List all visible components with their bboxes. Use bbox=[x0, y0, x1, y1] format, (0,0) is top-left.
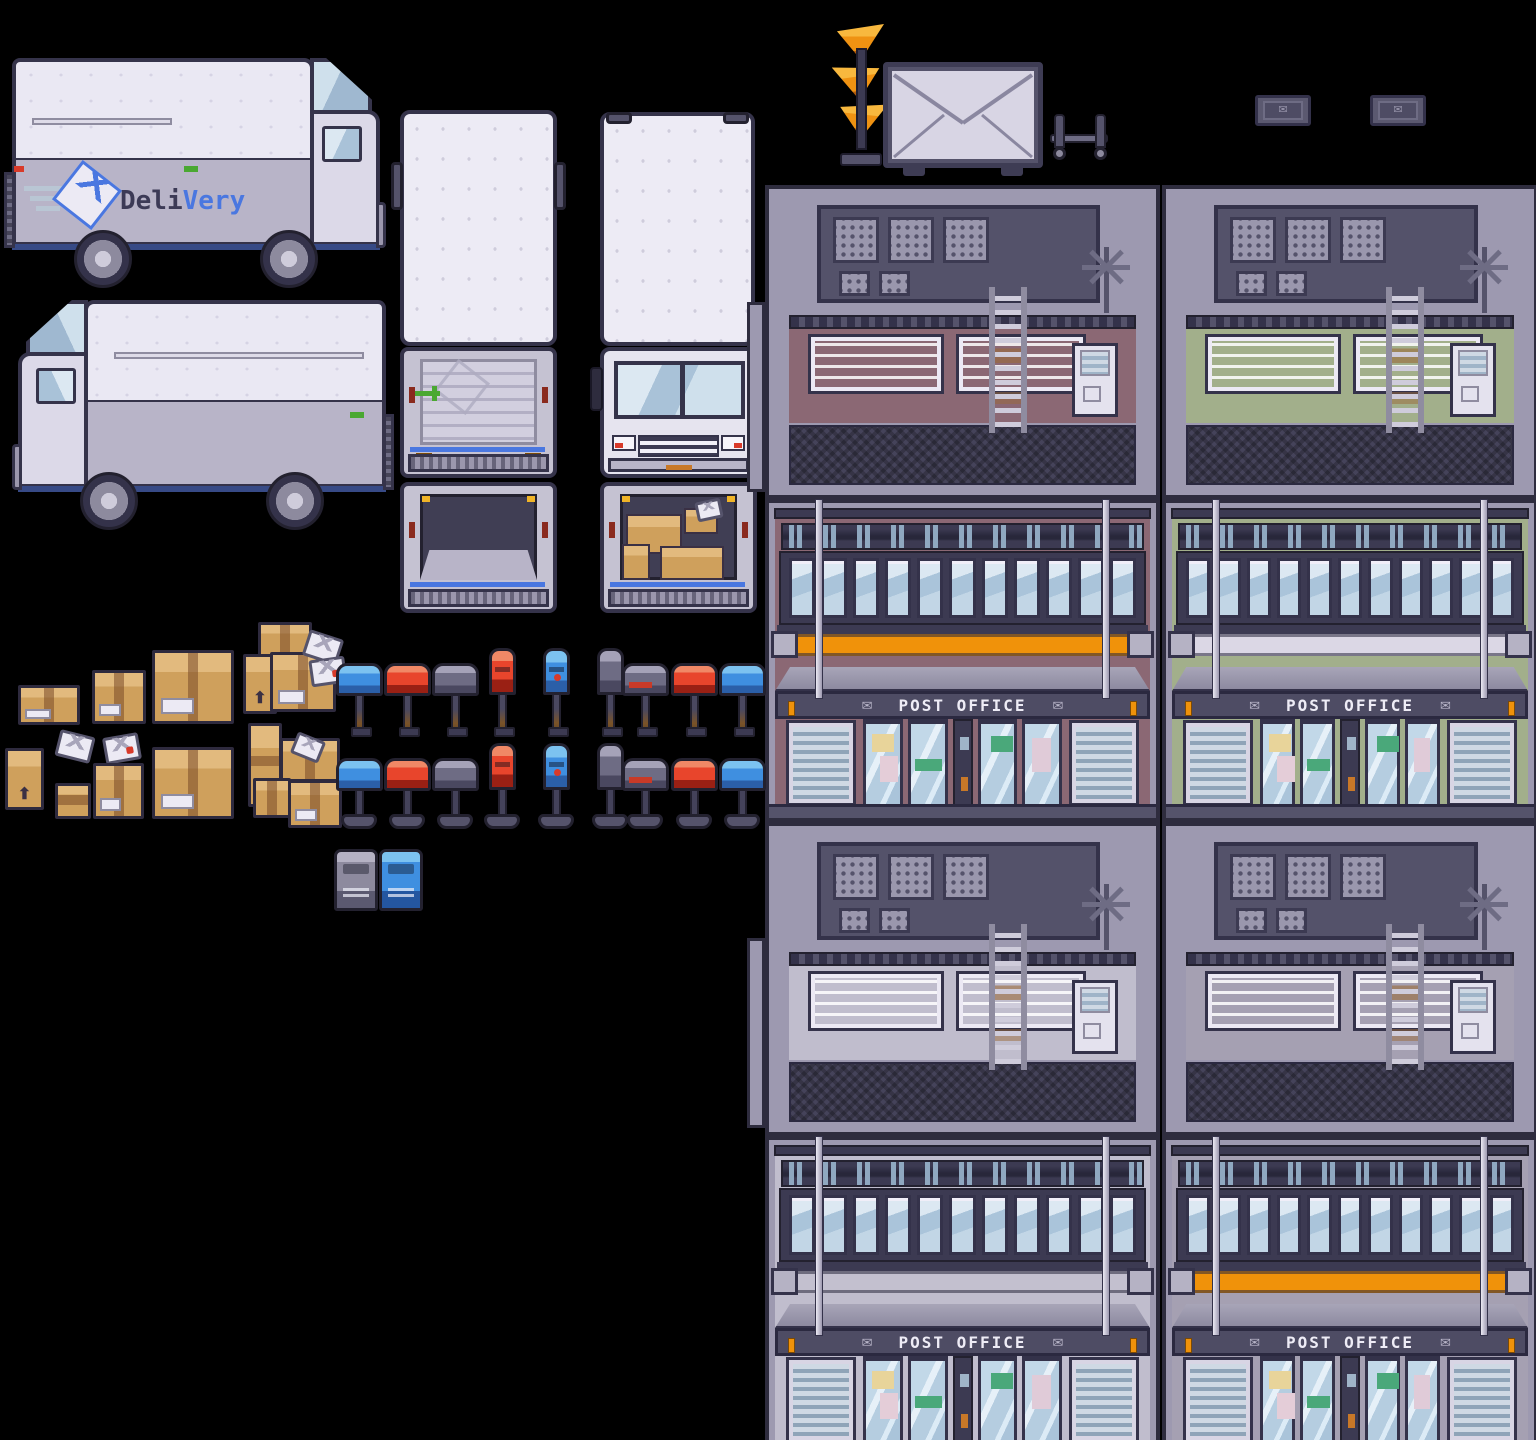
truck-mirror bbox=[554, 162, 566, 210]
tail-light bbox=[542, 387, 548, 403]
billboard-foot bbox=[1001, 166, 1023, 176]
apartment-floor bbox=[789, 329, 1136, 423]
envelope-icon: ✉ bbox=[862, 699, 873, 712]
tail-light bbox=[409, 387, 415, 403]
package-box bbox=[55, 783, 91, 819]
envelope-icon: ✉ bbox=[1052, 1336, 1063, 1349]
envelope bbox=[54, 729, 95, 764]
tall-window bbox=[1078, 558, 1104, 618]
stripe-end-cap bbox=[1127, 1268, 1154, 1295]
glass-pane-posters bbox=[1260, 1356, 1295, 1440]
ac-unit-small-icon bbox=[879, 908, 910, 933]
storefront bbox=[775, 1356, 1150, 1440]
ac-unit-icon bbox=[1340, 217, 1386, 263]
mailbox-stem bbox=[498, 788, 507, 816]
awning-lamp bbox=[1185, 1338, 1192, 1353]
stripe-end-cap bbox=[771, 631, 798, 658]
post-office-building-mauve-orange: ✉ POST OFFICE ✉ bbox=[765, 185, 1160, 822]
mailbox-red-side-pole bbox=[671, 663, 718, 696]
truck-blue-stripe bbox=[18, 486, 386, 492]
roof-rail bbox=[774, 508, 1151, 519]
glass-pane bbox=[908, 1356, 948, 1440]
envelope-glyph: ✉ bbox=[1278, 105, 1287, 116]
post-office-building-gray-gray: ✉ POST OFFICE ✉ bbox=[765, 822, 1160, 1440]
tall-window bbox=[1014, 1195, 1040, 1255]
glass-pane bbox=[1022, 719, 1062, 811]
mailbox-stem bbox=[355, 789, 364, 816]
roof-block bbox=[1162, 822, 1536, 1136]
tall-window bbox=[982, 1195, 1008, 1255]
support-pole bbox=[1212, 499, 1220, 699]
tall-window bbox=[917, 558, 943, 618]
truck-side-slot bbox=[32, 118, 172, 125]
storefront bbox=[1172, 719, 1528, 815]
door-hinge bbox=[727, 496, 735, 502]
cart-wheel bbox=[1053, 147, 1066, 160]
rooftop bbox=[1214, 205, 1478, 303]
rear-bumper bbox=[608, 589, 749, 607]
shuttered-window bbox=[1072, 1360, 1136, 1440]
ac-unit-icon bbox=[943, 854, 989, 900]
mailbox-post bbox=[498, 693, 507, 737]
tall-window bbox=[1078, 1195, 1104, 1255]
accent-stripe bbox=[777, 1271, 1148, 1293]
ac-unit-row-small bbox=[1236, 908, 1307, 933]
ac-unit-small-icon bbox=[1236, 271, 1267, 296]
ladder bbox=[1386, 287, 1424, 433]
tall-window bbox=[1247, 1195, 1271, 1255]
package-box bbox=[152, 650, 234, 724]
truck-windshield bbox=[26, 300, 88, 358]
awning-lamp bbox=[788, 701, 795, 716]
clerestory-windows bbox=[1178, 1160, 1522, 1187]
tall-window bbox=[1307, 1195, 1331, 1255]
ac-unit-icon bbox=[833, 854, 879, 900]
antenna-pole bbox=[1104, 884, 1109, 950]
antenna-icon bbox=[1082, 247, 1132, 313]
awning: ✉ POST OFFICE ✉ bbox=[1172, 667, 1528, 719]
tall-window bbox=[1110, 558, 1136, 618]
post-office-sign: POST OFFICE bbox=[1286, 1333, 1414, 1352]
tail-light bbox=[609, 522, 615, 538]
foundation-wall bbox=[1186, 425, 1514, 485]
mailbox-red-side-pole bbox=[384, 663, 431, 696]
truck-cab-window bbox=[322, 126, 362, 162]
shuttered-window bbox=[1186, 723, 1250, 803]
truck-wheel bbox=[74, 230, 132, 288]
window-band bbox=[779, 1188, 1146, 1262]
accent-stripe bbox=[1174, 1271, 1526, 1293]
tall-window bbox=[1399, 1195, 1423, 1255]
mailbox-post bbox=[738, 694, 747, 737]
envelope-icon: ✉ bbox=[1249, 1336, 1260, 1349]
green-cross-mark bbox=[414, 391, 440, 396]
mailbox-red-front-pole bbox=[489, 648, 516, 695]
stripe-end-cap bbox=[1168, 1268, 1195, 1295]
building-slot-4: ✉ POST OFFICE ✉ bbox=[1162, 822, 1536, 1440]
roof-rail bbox=[1171, 508, 1529, 519]
tall-window bbox=[1046, 558, 1072, 618]
cargo-package bbox=[622, 544, 650, 580]
cornice bbox=[1186, 315, 1514, 329]
awning-lamp bbox=[1130, 1338, 1137, 1353]
mailbox-red-side-base bbox=[384, 758, 431, 791]
mailbox-gray-red-side-base bbox=[622, 758, 669, 791]
clerestory-windows bbox=[1178, 523, 1522, 550]
parcel-locker-blue bbox=[379, 849, 423, 911]
post-office-sign: POST OFFICE bbox=[1286, 696, 1414, 715]
mailbox-blue-front-base bbox=[543, 743, 570, 790]
storefront-glass bbox=[863, 719, 1062, 811]
package-box bbox=[92, 670, 146, 724]
truck-roof-cap bbox=[723, 112, 749, 124]
roof-rail bbox=[1171, 1145, 1529, 1156]
foundation-wall bbox=[789, 425, 1136, 485]
stripe-end-cap bbox=[771, 1268, 798, 1295]
mailbox-post bbox=[552, 693, 561, 737]
door-hinge bbox=[527, 496, 535, 502]
ac-unit-icon bbox=[1285, 217, 1331, 263]
accent-stripe bbox=[1174, 634, 1526, 656]
tall-window bbox=[1307, 558, 1331, 618]
mailbox-post bbox=[403, 694, 412, 737]
storefront bbox=[775, 719, 1150, 815]
tall-window bbox=[1490, 1195, 1514, 1255]
truck-windshield bbox=[310, 58, 372, 116]
glass-pane-posters bbox=[863, 1356, 903, 1440]
mailbox-round-base bbox=[484, 814, 520, 829]
mailbox-round-base bbox=[676, 814, 712, 829]
roof-rail bbox=[774, 1145, 1151, 1156]
awning-lamp bbox=[1130, 701, 1137, 716]
mailbox-blue-side-base bbox=[336, 758, 383, 791]
support-pole bbox=[1102, 499, 1110, 699]
mailbox-gray-back-pole bbox=[597, 648, 624, 695]
truck-top-view bbox=[400, 110, 557, 346]
delivery-brand-text: DeliVery bbox=[120, 186, 245, 216]
mailbox-red-front-base bbox=[489, 743, 516, 790]
truck-roll-door bbox=[420, 359, 537, 445]
tall-window bbox=[982, 558, 1008, 618]
truck-blue-stripe bbox=[12, 244, 380, 250]
truck-front-bumper bbox=[376, 202, 386, 248]
truck-side-slot bbox=[114, 352, 364, 359]
truck-windshield bbox=[614, 361, 745, 419]
envelope-plaque: ✉ bbox=[1255, 95, 1311, 126]
awning-lamp bbox=[788, 1338, 795, 1353]
mailbox-stem bbox=[606, 788, 615, 816]
brand-blue-part: Very bbox=[183, 186, 246, 216]
entrance-door bbox=[1340, 719, 1360, 811]
awning-sign-band: ✉ POST OFFICE ✉ bbox=[775, 691, 1150, 719]
orange-marker bbox=[666, 465, 692, 470]
awning: ✉ POST OFFICE ✉ bbox=[775, 1304, 1150, 1356]
storefront-glass bbox=[1260, 719, 1440, 811]
tall-window bbox=[1277, 1195, 1301, 1255]
stripe-end-cap bbox=[1168, 631, 1195, 658]
envelope-icon: ✉ bbox=[862, 1336, 873, 1349]
ac-unit-small-icon bbox=[1276, 271, 1307, 296]
package-box bbox=[288, 780, 342, 828]
tall-window bbox=[949, 1195, 975, 1255]
apartment-door bbox=[1072, 343, 1118, 417]
window-sill-band bbox=[1174, 1262, 1526, 1271]
truck-rear-bumper bbox=[383, 414, 394, 490]
mailbox-round-base bbox=[389, 814, 425, 829]
glass-pane bbox=[978, 719, 1018, 811]
base-plinth bbox=[1166, 804, 1534, 818]
cart-handle bbox=[1054, 114, 1065, 148]
post-office-block: ✉ POST OFFICE ✉ bbox=[1162, 1136, 1536, 1440]
ac-unit-icon bbox=[888, 854, 934, 900]
tall-window bbox=[1338, 558, 1362, 618]
envelope-stamped bbox=[102, 732, 142, 765]
apartment-floor bbox=[1186, 329, 1514, 423]
tall-window bbox=[1216, 1195, 1240, 1255]
entrance-door bbox=[953, 1356, 973, 1440]
mailbox-gray-back-base bbox=[597, 743, 624, 790]
tall-window bbox=[789, 1195, 815, 1255]
envelope-icon: ✉ bbox=[1440, 1336, 1451, 1349]
tall-window bbox=[917, 1195, 943, 1255]
stripe-end-cap bbox=[1127, 631, 1154, 658]
tall-window bbox=[1277, 558, 1301, 618]
truck-roof-cap bbox=[606, 112, 632, 124]
building-slot-3: ✉ POST OFFICE ✉ bbox=[765, 822, 1160, 1440]
window-band bbox=[1176, 551, 1524, 625]
ac-unit-small-icon bbox=[839, 271, 870, 296]
apartment-window bbox=[1208, 974, 1338, 1028]
tail-light bbox=[409, 522, 415, 538]
envelope-billboard bbox=[883, 62, 1043, 168]
storefront-glass bbox=[863, 1356, 1062, 1440]
tall-window bbox=[1368, 558, 1392, 618]
ac-unit-icon bbox=[943, 217, 989, 263]
roof-block bbox=[765, 822, 1160, 1136]
mailbox-post bbox=[641, 694, 650, 737]
awning-lamp bbox=[1508, 701, 1515, 716]
spritesheet-canvas: DeliVery bbox=[0, 0, 1536, 1440]
sculpture-base bbox=[840, 153, 882, 166]
mailbox-blue-side-pole bbox=[336, 663, 383, 696]
envelope-icon: ✉ bbox=[1440, 699, 1451, 712]
cargo-package bbox=[660, 546, 724, 580]
support-pole bbox=[815, 499, 823, 699]
mailbox-round-base bbox=[538, 814, 574, 829]
apartment-window bbox=[811, 974, 941, 1028]
door-hinge bbox=[422, 496, 430, 502]
tall-window bbox=[853, 558, 879, 618]
ladder bbox=[989, 924, 1027, 1070]
truck-top-view bbox=[600, 112, 755, 346]
stripe-end-cap bbox=[1505, 1268, 1532, 1295]
tall-window bbox=[1429, 1195, 1453, 1255]
support-pole bbox=[1102, 1136, 1110, 1336]
envelope-icon: ✉ bbox=[1263, 101, 1303, 120]
glass-pane-posters bbox=[863, 719, 903, 811]
building-edge-sliver bbox=[747, 302, 765, 492]
tall-window bbox=[821, 558, 847, 618]
green-marker-light bbox=[184, 166, 198, 172]
ac-unit-small-icon bbox=[839, 908, 870, 933]
brand-dark-part: Deli bbox=[120, 186, 183, 216]
headlight bbox=[721, 435, 745, 451]
glass-pane bbox=[1300, 1356, 1335, 1440]
awning-sign-band: ✉ POST OFFICE ✉ bbox=[775, 1328, 1150, 1356]
package-box bbox=[18, 685, 80, 725]
apartment-door bbox=[1072, 980, 1118, 1054]
glass-pane bbox=[1365, 719, 1400, 811]
roof-block bbox=[1162, 185, 1536, 499]
mailbox-red-side-base bbox=[671, 758, 718, 791]
stripe-end-cap bbox=[1505, 631, 1532, 658]
ladder bbox=[989, 287, 1027, 433]
glass-pane bbox=[978, 1356, 1018, 1440]
entrance-door bbox=[1340, 1356, 1360, 1440]
ac-unit-row-small bbox=[839, 908, 910, 933]
mailbox-round-base bbox=[437, 814, 473, 829]
building-slot-1: ✉ POST OFFICE ✉ bbox=[765, 185, 1160, 822]
antenna-icon bbox=[1460, 247, 1510, 313]
apartment-door bbox=[1450, 343, 1496, 417]
ac-unit-icon bbox=[1230, 854, 1276, 900]
window-sill-band bbox=[777, 625, 1148, 634]
tall-window bbox=[1110, 1195, 1136, 1255]
mailbox-round-base bbox=[592, 814, 628, 829]
mailbox-blue-front-pole bbox=[543, 648, 570, 695]
entrance-door bbox=[953, 719, 973, 811]
apartment-floor bbox=[1186, 966, 1514, 1060]
blue-stripe bbox=[410, 447, 545, 452]
billboard-foot bbox=[903, 166, 925, 176]
truck-rear-open-empty bbox=[400, 482, 557, 613]
logo-speed-line bbox=[36, 206, 60, 211]
rooftop bbox=[817, 205, 1100, 303]
accent-stripe bbox=[777, 634, 1148, 656]
clerestory-windows bbox=[781, 1160, 1144, 1187]
mailbox-stem bbox=[690, 789, 699, 816]
antenna-pole bbox=[1482, 247, 1487, 313]
tall-window bbox=[1338, 1195, 1362, 1255]
truck-mirror bbox=[590, 367, 603, 411]
cornice bbox=[789, 315, 1136, 329]
tall-window bbox=[949, 558, 975, 618]
post-office-sign: POST OFFICE bbox=[899, 1333, 1027, 1352]
envelope-icon: ✉ bbox=[1249, 699, 1260, 712]
tall-window bbox=[885, 558, 911, 618]
ac-unit-row bbox=[1230, 854, 1386, 900]
awning-sign-band: ✉ POST OFFICE ✉ bbox=[1172, 691, 1528, 719]
window-sill-band bbox=[777, 1262, 1148, 1271]
awning-lamp bbox=[1185, 701, 1192, 716]
post-office-block: ✉ POST OFFICE ✉ bbox=[1162, 499, 1536, 822]
envelope-plaque: ✉ bbox=[1370, 95, 1426, 126]
mailbox-post bbox=[690, 694, 699, 737]
post-office-block: ✉ POST OFFICE ✉ bbox=[765, 1136, 1160, 1440]
awning-lamp bbox=[1508, 1338, 1515, 1353]
support-pole bbox=[815, 1136, 823, 1336]
mailbox-blue-side-pole bbox=[719, 663, 766, 696]
rear-bumper bbox=[408, 589, 549, 607]
tall-window bbox=[1429, 558, 1453, 618]
foundation-wall bbox=[789, 1062, 1136, 1122]
post-office-building-green-white: ✉ POST OFFICE ✉ bbox=[1162, 185, 1536, 822]
envelope-glyph: ✉ bbox=[1393, 105, 1402, 116]
envelope-icon: ✉ bbox=[1052, 699, 1063, 712]
shuttered-window bbox=[1450, 723, 1514, 803]
shuttered-window bbox=[1186, 1360, 1250, 1440]
mailbox-stem bbox=[641, 789, 650, 816]
truck-front-bumper bbox=[12, 444, 22, 490]
tall-window bbox=[853, 1195, 879, 1255]
glass-pane bbox=[1365, 1356, 1400, 1440]
antenna-pole bbox=[1104, 247, 1109, 313]
mailbox-stem bbox=[451, 789, 460, 816]
blue-stripe bbox=[610, 582, 745, 587]
ladder bbox=[1386, 924, 1424, 1070]
foundation-wall bbox=[1186, 1062, 1514, 1122]
awning-canopy bbox=[1172, 667, 1528, 691]
truck-front-view bbox=[600, 347, 757, 478]
ac-unit-icon bbox=[833, 217, 879, 263]
cart-handle bbox=[1095, 114, 1106, 148]
ac-unit-row bbox=[833, 217, 989, 263]
ac-unit-row-small bbox=[1236, 271, 1307, 296]
envelope-icon bbox=[892, 71, 1034, 159]
truck-lower-panel bbox=[84, 402, 386, 488]
ac-unit-small-icon bbox=[1276, 908, 1307, 933]
post-office-sign: POST OFFICE bbox=[899, 696, 1027, 715]
truck-rear-open-packages bbox=[600, 482, 757, 613]
rear-bumper bbox=[408, 454, 549, 472]
awning-sign-band: ✉ POST OFFICE ✉ bbox=[1172, 1328, 1528, 1356]
tall-window bbox=[1368, 1195, 1392, 1255]
mailbox-stem bbox=[738, 789, 747, 816]
antenna-icon bbox=[1082, 884, 1132, 950]
mailbox-post bbox=[355, 694, 364, 737]
awning: ✉ POST OFFICE ✉ bbox=[1172, 1304, 1528, 1356]
truck-cab-window bbox=[36, 368, 76, 404]
tall-window bbox=[1247, 558, 1271, 618]
clerestory-windows bbox=[781, 523, 1144, 550]
tall-window bbox=[1186, 1195, 1210, 1255]
tall-window bbox=[1399, 558, 1423, 618]
glass-pane bbox=[1405, 719, 1440, 811]
rooftop bbox=[1214, 842, 1478, 940]
truck-grille bbox=[638, 435, 719, 457]
window-sill-band bbox=[1174, 625, 1526, 634]
ac-unit-row bbox=[1230, 217, 1386, 263]
sculpture-pole bbox=[856, 48, 867, 150]
antenna-icon bbox=[1460, 884, 1510, 950]
window-band bbox=[1176, 1188, 1524, 1262]
ac-unit-row-small bbox=[839, 271, 910, 296]
awning: ✉ POST OFFICE ✉ bbox=[775, 667, 1150, 719]
awning-canopy bbox=[775, 667, 1150, 691]
package-box bbox=[253, 778, 291, 818]
orange-horn-sculpture bbox=[832, 20, 890, 166]
window-band bbox=[779, 551, 1146, 625]
support-pole bbox=[1212, 1136, 1220, 1336]
truck-wheel bbox=[260, 230, 318, 288]
tall-window bbox=[821, 1195, 847, 1255]
package-box bbox=[152, 747, 234, 819]
truck-rear-bumper bbox=[4, 172, 15, 248]
truck-mirror bbox=[391, 162, 403, 210]
luggage-cart bbox=[1048, 112, 1112, 160]
mailbox-round-base bbox=[627, 814, 663, 829]
mailbox-gray-red-side-pole bbox=[622, 663, 669, 696]
